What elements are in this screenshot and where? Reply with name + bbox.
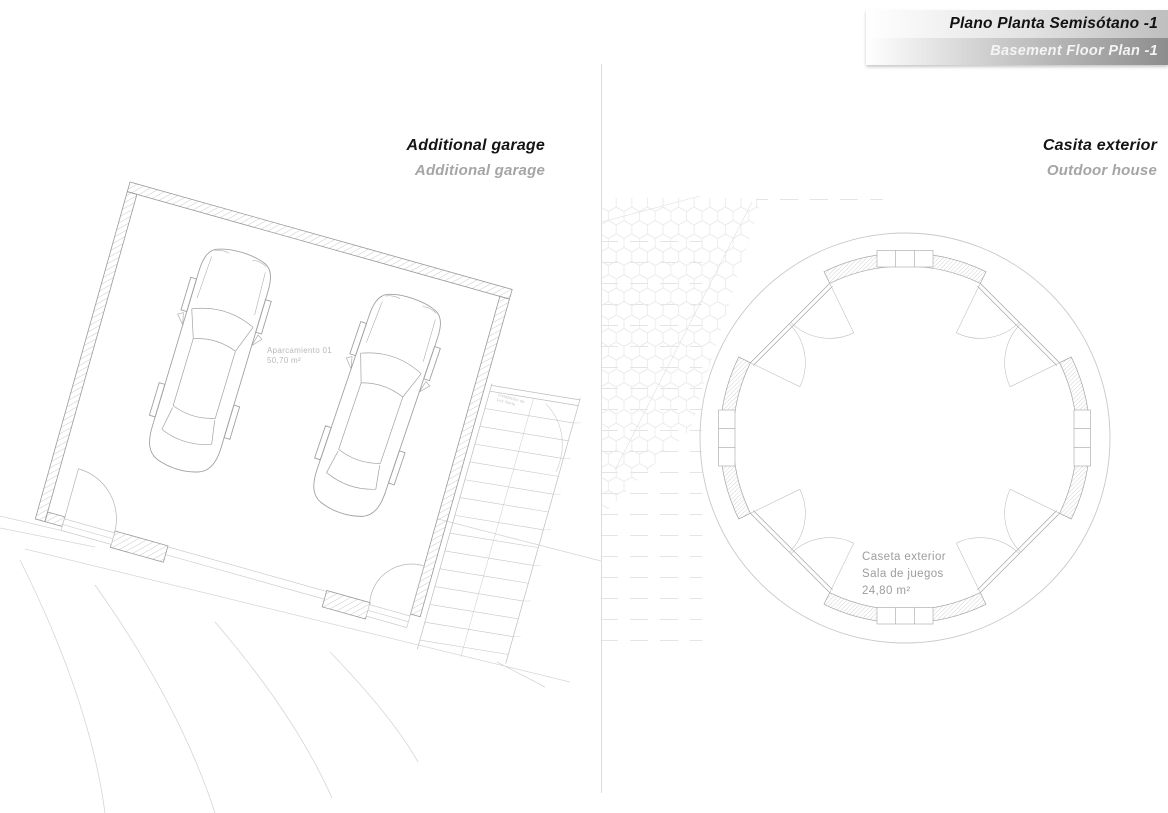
garage-heading-sub: Additional garage bbox=[145, 162, 545, 179]
plan-title-spanish: Plano Planta Semisótano -1 bbox=[866, 10, 1168, 38]
casita-room-area: 24,80 m² bbox=[862, 583, 946, 600]
casita-section-heading: Casita exterior Outdoor house bbox=[757, 137, 1157, 179]
basement-floor-plan-page: { "title_block": { "title_es": "Plano Pl… bbox=[0, 0, 1168, 813]
plan-title-english: Basement Floor Plan -1 bbox=[866, 38, 1168, 65]
garage-room-area: 50,70 m² bbox=[267, 356, 332, 366]
casita-heading-main: Casita exterior bbox=[757, 137, 1157, 155]
glass-panels bbox=[750, 283, 1059, 592]
floor-plan-drawing bbox=[0, 0, 1168, 813]
terrain-lines bbox=[0, 404, 601, 813]
garage-door-right bbox=[365, 554, 424, 627]
site-texture bbox=[602, 188, 883, 658]
garage-heading-main: Additional garage bbox=[145, 137, 545, 155]
door-swings bbox=[750, 283, 1059, 592]
casita-room-use: Sala de juegos bbox=[862, 566, 946, 583]
garage-room-label: Aparcamiento 01 50,70 m² bbox=[267, 346, 332, 366]
garage-walls bbox=[33, 182, 512, 633]
casita-heading-sub: Outdoor house bbox=[757, 162, 1157, 179]
garage-plan bbox=[29, 182, 610, 675]
garage-section-heading: Additional garage Additional garage bbox=[145, 137, 545, 179]
title-block: Plano Planta Semisótano -1 Basement Floo… bbox=[866, 10, 1168, 65]
casita-room-name: Caseta exterior bbox=[862, 549, 946, 566]
casita-room-label: Caseta exterior Sala de juegos 24,80 m² bbox=[862, 549, 946, 600]
garage-room-name: Aparcamiento 01 bbox=[267, 346, 332, 356]
car-1 bbox=[135, 240, 284, 482]
car-2 bbox=[299, 284, 455, 527]
